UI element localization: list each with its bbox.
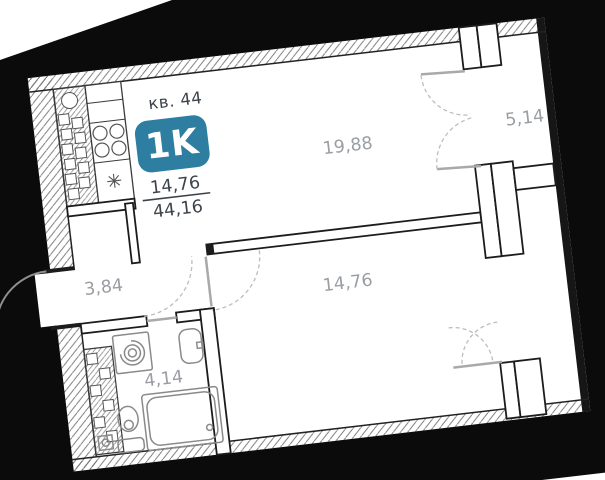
apartment-floorplan: кв. 44 1K 14,76 44,16 19,88 5,14 14,76 3… <box>21 11 597 480</box>
bedroom-corner-pillar <box>500 358 546 418</box>
rooms-badge-label: 1K <box>144 122 203 168</box>
floorplan-drawing: кв. 44 1K 14,76 44,16 19,88 5,14 14,76 3… <box>0 0 605 480</box>
partition-end-cap <box>206 244 214 255</box>
floorplan-canvas: кв. 44 1K 14,76 44,16 19,88 5,14 14,76 3… <box>0 0 605 480</box>
